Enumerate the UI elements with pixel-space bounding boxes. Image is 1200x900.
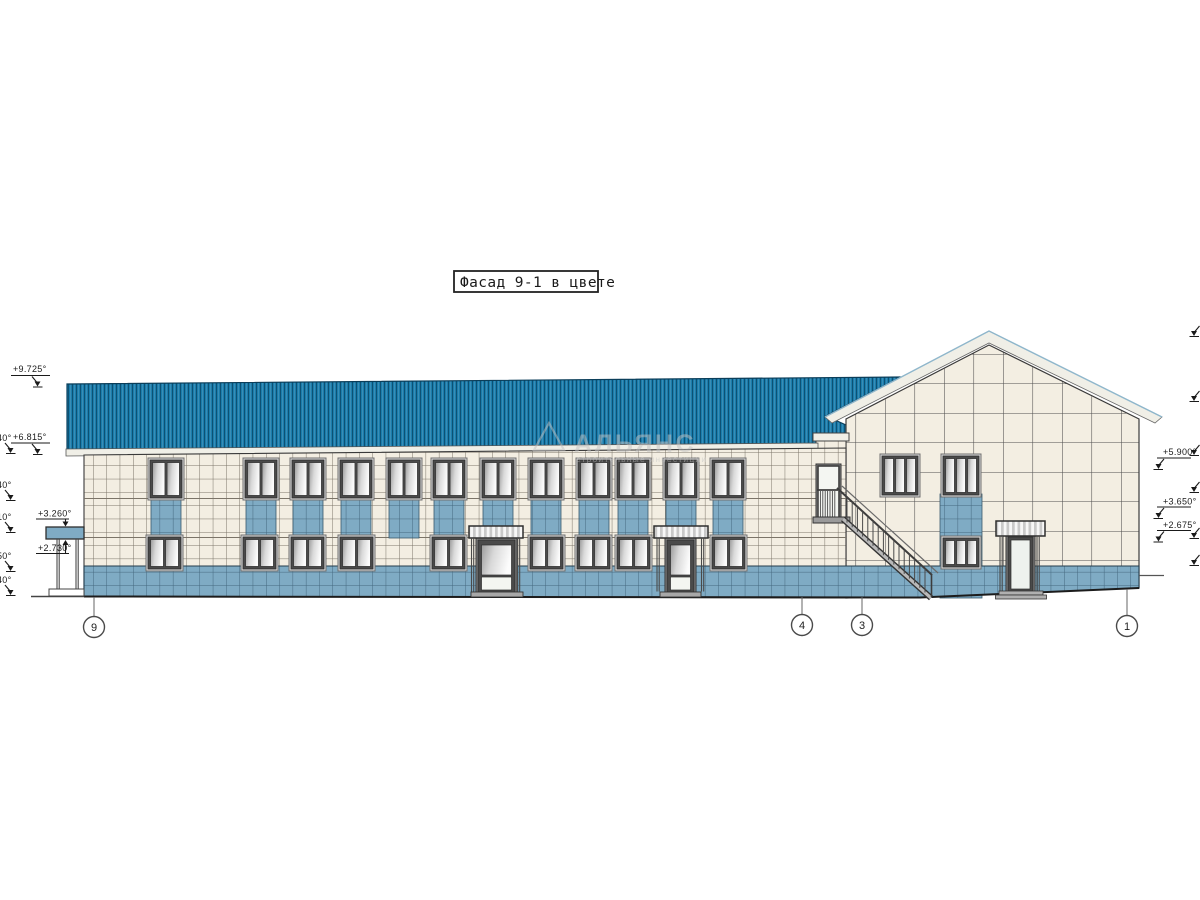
drawing-canvas: +9.725°+6.815°+3.260°+2.730°40°40°10°50°… (0, 0, 1200, 900)
window (528, 535, 565, 571)
rect (391, 463, 403, 496)
rect (436, 463, 448, 496)
rect (151, 498, 181, 538)
rect (166, 540, 179, 567)
main-roof (67, 377, 901, 451)
rect (671, 545, 691, 575)
rect (262, 463, 274, 496)
rect (579, 498, 609, 538)
arrowhead (1191, 487, 1197, 492)
rect (581, 463, 593, 496)
rect (715, 540, 728, 567)
rect (343, 540, 356, 567)
arrowhead (8, 566, 14, 571)
window (241, 535, 278, 571)
window (148, 458, 184, 500)
window (243, 458, 279, 500)
rect (246, 498, 276, 538)
rect (713, 498, 743, 538)
rect (357, 463, 369, 496)
window (528, 458, 564, 500)
rect (682, 463, 694, 496)
view-title: Фасад 9-1 в цвете (454, 271, 615, 292)
arrowhead (8, 495, 14, 500)
arrowhead (8, 448, 14, 453)
entrance-door (469, 526, 523, 597)
rect (295, 463, 307, 496)
rect (671, 577, 691, 590)
window (289, 535, 326, 571)
rect (668, 463, 680, 496)
rect (246, 540, 259, 567)
window (710, 535, 747, 571)
rect (818, 466, 839, 518)
rect (434, 498, 464, 538)
rect (49, 589, 84, 596)
window (480, 458, 516, 500)
arrowhead (8, 590, 14, 595)
arrowhead (1156, 537, 1162, 542)
elevation-label: 40° (0, 433, 12, 443)
left-canopy (46, 527, 84, 596)
rect (531, 498, 561, 538)
rect (309, 540, 322, 567)
rect (482, 577, 512, 590)
elevation-label: +9.725° (13, 364, 47, 374)
window (430, 535, 467, 571)
arrowhead (35, 382, 41, 387)
axis-number: 1 (1124, 621, 1130, 633)
rect (151, 540, 164, 567)
rect (482, 545, 512, 575)
arrowhead (1156, 464, 1162, 469)
rect (435, 540, 448, 567)
elevation-label: +2.675° (1163, 520, 1197, 530)
elevation-markers-right: +5.900°+3.650°+2.675° (1154, 447, 1197, 542)
rect (999, 591, 1043, 595)
rect (261, 540, 274, 567)
rect (968, 459, 977, 493)
rect (548, 540, 561, 567)
rect (620, 540, 633, 567)
window (880, 454, 920, 497)
rect (957, 459, 966, 493)
elevation-label: 40° (0, 575, 12, 585)
arrowhead (1191, 533, 1197, 538)
rect (885, 459, 894, 493)
axis-marker-3: 3 (852, 597, 873, 636)
arrowhead (1191, 396, 1197, 401)
axis-number: 9 (91, 622, 97, 634)
window (710, 458, 746, 500)
title-text: Фасад 9-1 в цвете (460, 275, 615, 291)
window (576, 458, 612, 500)
elevation-label: 40° (0, 480, 12, 490)
rect (634, 463, 646, 496)
window (338, 458, 374, 500)
rect (450, 463, 462, 496)
axis-marker-9: 9 (84, 597, 105, 638)
elevation-label: +3.650° (1163, 497, 1197, 507)
axis-number: 4 (799, 620, 805, 632)
window (575, 535, 612, 571)
window (146, 535, 183, 571)
window (386, 458, 422, 500)
rect (996, 595, 1047, 599)
rect (660, 592, 701, 597)
rect (896, 459, 905, 493)
window (290, 458, 326, 500)
elevation-label: +6.815° (13, 432, 47, 442)
rect (469, 526, 523, 538)
rect (957, 541, 966, 565)
elevation-label: +3.260° (38, 509, 72, 519)
rect (533, 463, 545, 496)
window (941, 536, 981, 569)
arrowhead (1191, 560, 1197, 565)
rect (715, 463, 727, 496)
window (338, 535, 375, 571)
rect (996, 521, 1045, 536)
rect (343, 463, 355, 496)
elevation-label: 50° (0, 551, 12, 561)
arrowhead (1191, 331, 1197, 336)
rect (46, 527, 84, 539)
axis-number: 3 (859, 620, 865, 632)
rect (405, 463, 417, 496)
rect (547, 463, 559, 496)
elevation-label: 10° (0, 512, 12, 522)
rect (595, 463, 607, 496)
rect (730, 540, 743, 567)
rect (248, 463, 260, 496)
arrowhead (1156, 513, 1162, 518)
facade-elevation-drawing: +9.725°+6.815°+3.260°+2.730°40°40°10°50°… (0, 0, 1200, 900)
rect (153, 463, 165, 496)
elevation-markers-left-clipped: 40°40°10°50°40° (0, 433, 16, 596)
arrowhead (35, 449, 41, 454)
window (941, 454, 981, 497)
rect (907, 459, 916, 493)
rect (499, 463, 511, 496)
watermark-line2: строительные инвестиции (576, 454, 707, 464)
window (663, 458, 699, 500)
rect (309, 463, 321, 496)
rect (946, 459, 955, 493)
rect (620, 463, 632, 496)
window (615, 458, 651, 500)
rect (471, 592, 523, 597)
arrowhead (63, 522, 69, 527)
rect (293, 498, 323, 538)
rect (595, 540, 608, 567)
rect (968, 541, 977, 565)
rect (358, 540, 371, 567)
axis-marker-1: 1 (1117, 589, 1138, 637)
rect (1011, 540, 1030, 589)
rect (341, 498, 371, 538)
rect (485, 463, 497, 496)
window (431, 458, 467, 500)
rect (533, 540, 546, 567)
rect (450, 540, 463, 567)
rect (167, 463, 179, 496)
rect (294, 540, 307, 567)
arrowhead (8, 527, 14, 532)
rect (729, 463, 741, 496)
rect (618, 498, 648, 538)
rect (654, 526, 708, 538)
window (615, 535, 652, 571)
rect (946, 541, 955, 565)
rect (389, 498, 419, 538)
rect (635, 540, 648, 567)
axis-marker-4: 4 (792, 597, 813, 636)
rect (580, 540, 593, 567)
stair-tower-cap (813, 433, 849, 441)
elevation-markers-left: +9.725°+6.815°+3.260°+2.730° (11, 364, 72, 554)
